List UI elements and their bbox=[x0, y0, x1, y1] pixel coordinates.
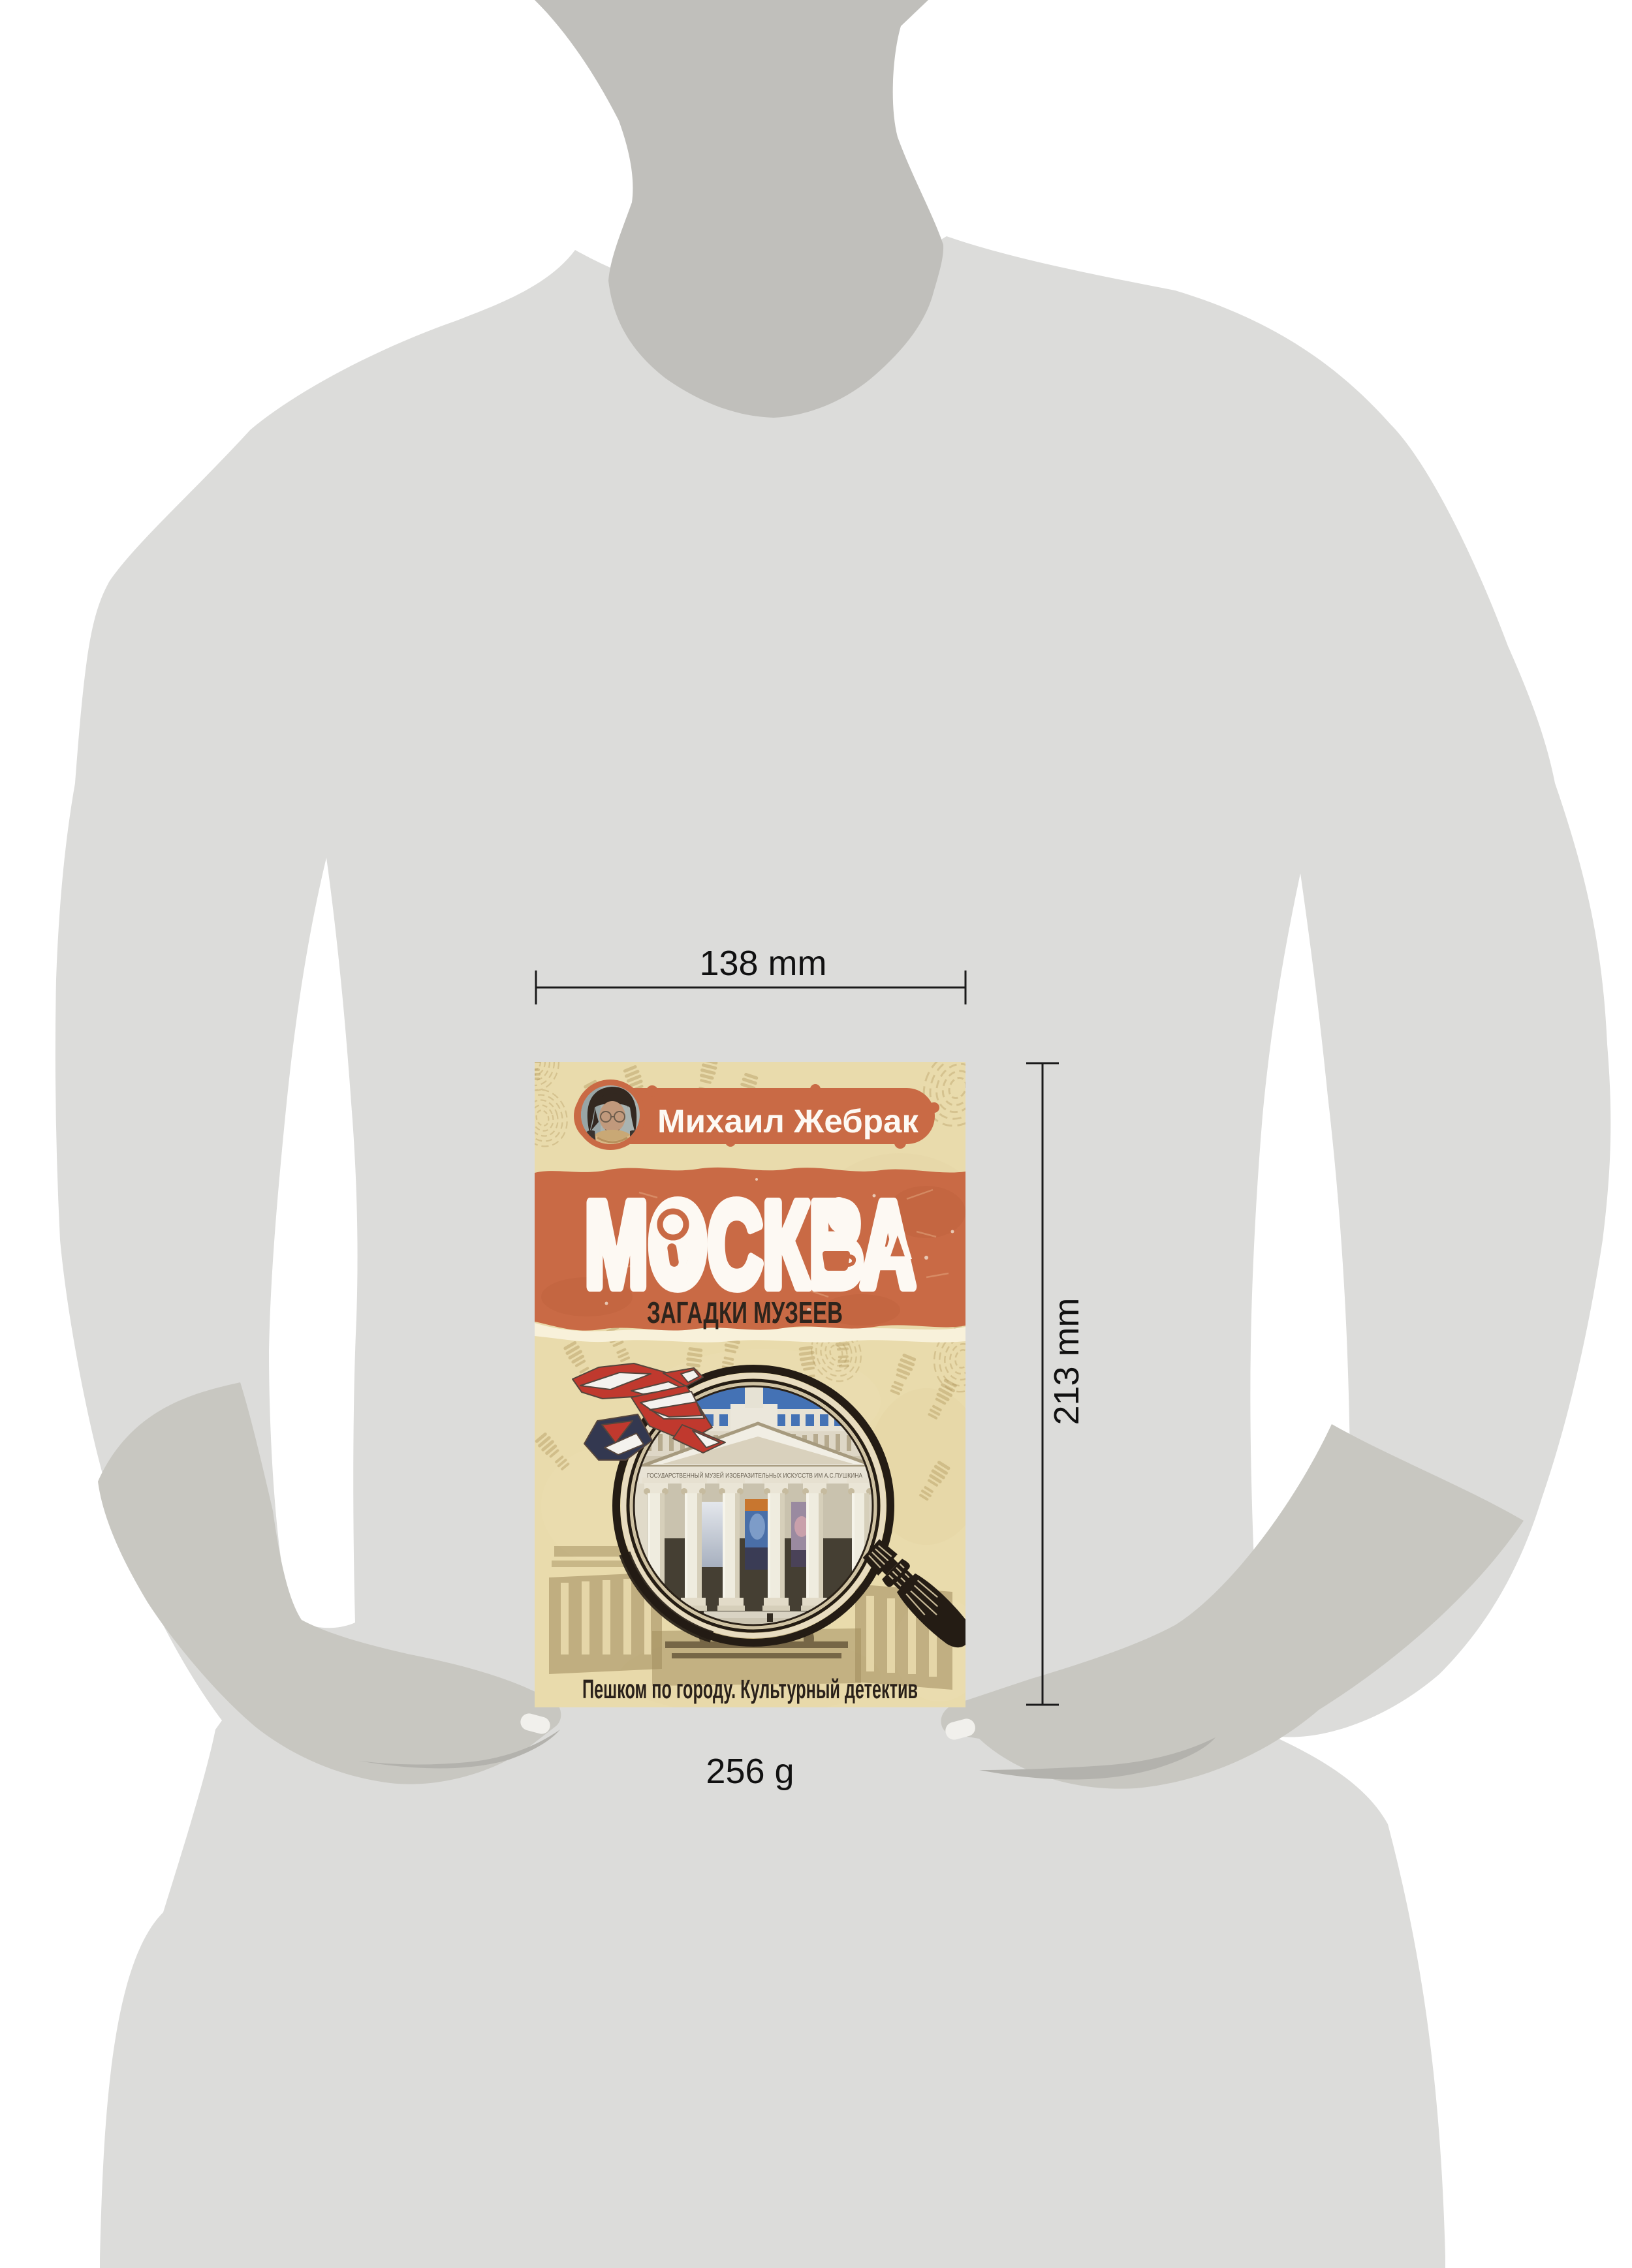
svg-text:МОСКВА: МОСКВА bbox=[585, 1176, 916, 1312]
svg-text:213 mm: 213 mm bbox=[1047, 1297, 1086, 1425]
svg-text:Михаил Жебрак: Михаил Жебрак bbox=[657, 1103, 919, 1140]
svg-text:ГОСУДАРСТВЕННЫЙ МУЗЕЙ ИЗОБРАЗИ: ГОСУДАРСТВЕННЫЙ МУЗЕЙ ИЗОБРАЗИТЕЛЬНЫХ ИС… bbox=[647, 1471, 862, 1480]
svg-text:138 mm: 138 mm bbox=[699, 944, 826, 983]
svg-text:Пешком по городу. Культурный д: Пешком по городу. Культурный детектив bbox=[582, 1674, 918, 1704]
svg-text:256 g: 256 g bbox=[706, 1752, 794, 1791]
svg-text:ЗАГАДКИ МУЗЕЕВ: ЗАГАДКИ МУЗЕЕВ bbox=[647, 1296, 843, 1329]
